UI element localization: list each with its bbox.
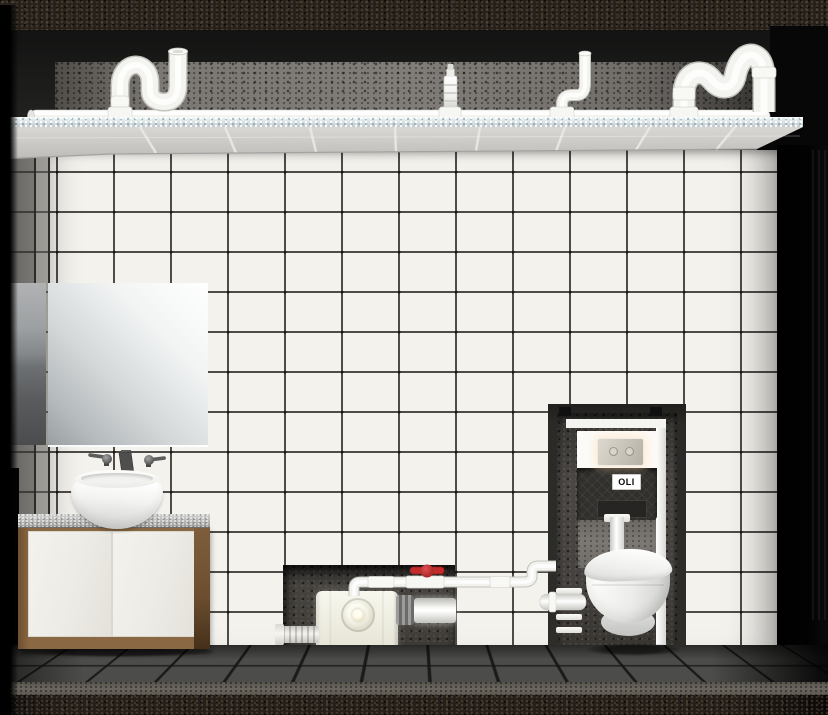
toilet-discharge-stub [540, 592, 586, 612]
vanity-door-right [112, 531, 196, 637]
vanity-side-panel [194, 527, 210, 649]
toilet-shadow [586, 643, 682, 656]
bathroom-render: OLI [0, 0, 828, 715]
vanity-door-left [28, 531, 112, 637]
toilet-seam [592, 584, 664, 586]
discharge-pipe [354, 566, 556, 596]
shutoff-valve [406, 565, 444, 589]
floor-slab-edge [0, 682, 828, 696]
faucet-handle-right [144, 455, 166, 467]
concrete-slab-bottom [0, 695, 828, 715]
faucet-handle-left [88, 453, 112, 466]
basin-inner [81, 473, 153, 484]
left-edge-shadow [0, 5, 18, 715]
